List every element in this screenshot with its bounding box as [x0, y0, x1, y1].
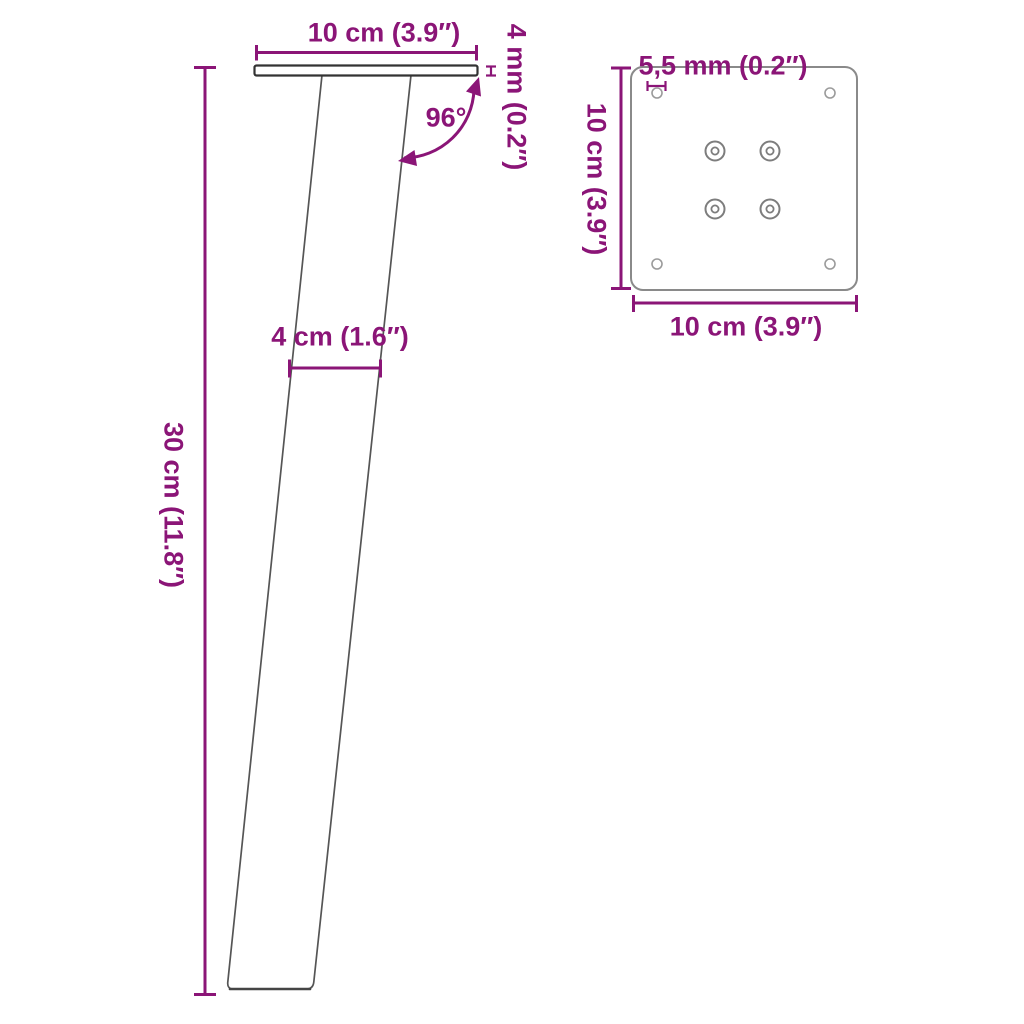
label-plate-thickness: 4 mm (0.2″)	[503, 24, 530, 170]
dim-plate-height	[611, 68, 631, 289]
label-top-width: 10 cm (3.9″)	[308, 20, 461, 47]
mount-hole	[706, 142, 725, 161]
corner-hole	[825, 259, 835, 269]
plate-side-outline	[255, 66, 478, 76]
corner-hole	[652, 259, 662, 269]
leg-outline	[228, 75, 411, 989]
dim-plate-width	[633, 295, 857, 312]
label-leg-height: 30 cm (11.8″)	[160, 422, 187, 588]
label-hole-diameter: 5,5 mm (0.2″)	[638, 53, 807, 80]
label-plate-width: 10 cm (3.9″)	[670, 314, 823, 341]
mount-hole	[761, 200, 780, 219]
label-leg-width: 4 cm (1.6″)	[271, 324, 409, 351]
mount-hole	[761, 142, 780, 161]
mount-hole	[706, 200, 725, 219]
dim-plate-thickness-tick	[486, 67, 496, 76]
dimension-diagram: 10 cm (3.9″) 4 mm (0.2″) 96° 4 cm (1.6″)…	[0, 0, 1024, 1024]
label-angle: 96°	[426, 105, 467, 132]
label-plate-height: 10 cm (3.9″)	[583, 103, 610, 256]
corner-hole	[825, 88, 835, 98]
corner-hole	[652, 88, 662, 98]
side-view	[194, 45, 496, 995]
top-view	[611, 67, 857, 312]
arrowhead-up-icon	[466, 77, 481, 97]
plate-top-outline	[631, 67, 857, 290]
dim-leg-height	[194, 68, 216, 995]
